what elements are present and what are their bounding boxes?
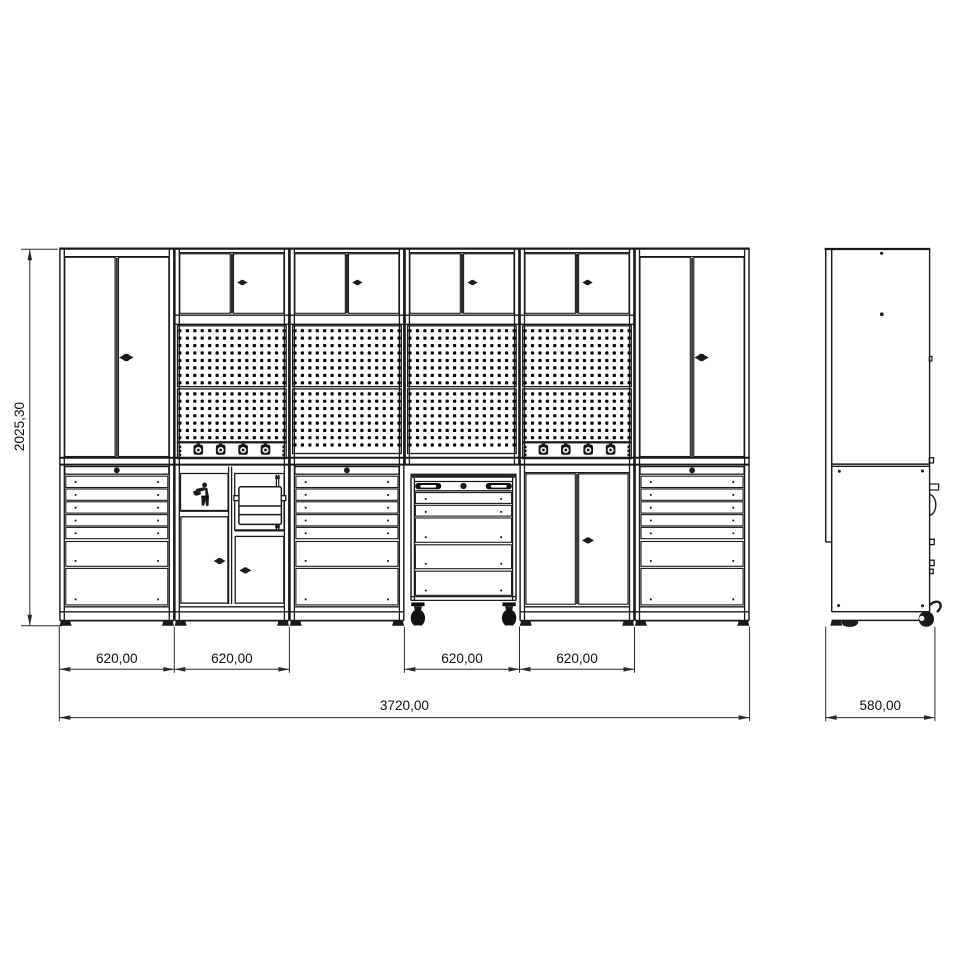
svg-text:620,00: 620,00 <box>556 651 598 666</box>
svg-text:3720,00: 3720,00 <box>380 698 430 713</box>
svg-text:580,00: 580,00 <box>860 698 902 713</box>
svg-text:620,00: 620,00 <box>211 651 253 666</box>
svg-text:620,00: 620,00 <box>441 651 483 666</box>
svg-text:2025,30: 2025,30 <box>12 401 27 451</box>
svg-text:620,00: 620,00 <box>96 651 138 666</box>
